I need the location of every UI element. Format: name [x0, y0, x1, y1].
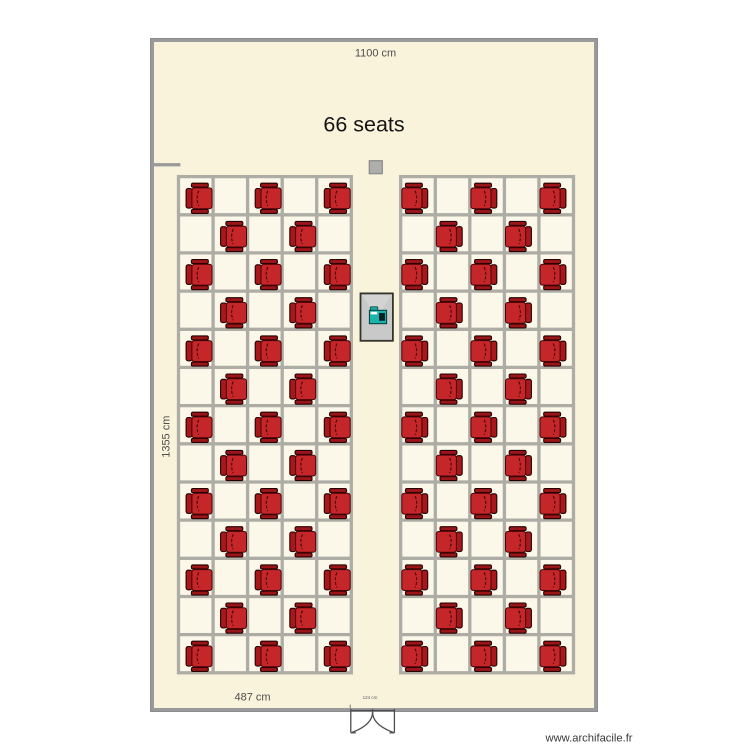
svg-text:66 seats: 66 seats — [323, 113, 404, 137]
svg-text:124 cm: 124 cm — [363, 695, 378, 700]
svg-text:1355 cm: 1355 cm — [161, 416, 173, 458]
svg-text:487 cm: 487 cm — [234, 691, 270, 703]
svg-text:1100 cm: 1100 cm — [355, 48, 396, 60]
svg-text:www.archifacile.fr: www.archifacile.fr — [545, 733, 633, 745]
